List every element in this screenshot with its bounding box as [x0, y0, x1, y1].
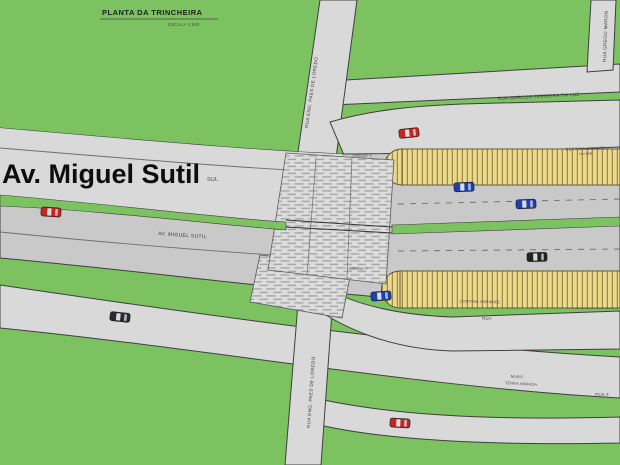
car-icon [110, 311, 131, 322]
annotation-sheet-ref: PLN 4 [595, 392, 609, 397]
car-icon [527, 252, 547, 261]
car-icon [41, 207, 62, 217]
car-icon [390, 418, 410, 428]
avenue-overlay-label: Av. Miguel Sutil [2, 159, 200, 189]
annotation-lower-wall: CORTINA VARIAVEL [459, 299, 501, 305]
annotation-grade-upper: GREIDE 9 [352, 154, 371, 158]
car-icon [371, 291, 392, 301]
annotation-upper-wall-height: H=VAR [579, 152, 593, 156]
annotation-grade-lower: GREIDE 7 [348, 267, 367, 271]
service-road-label: RUA [482, 316, 491, 321]
car-icon [516, 199, 536, 209]
plan-subtitle: ESCALA 1:500 [168, 22, 200, 27]
plan-canvas: PLANTA DA TRINCHEIRA ESCALA 1:500 Av. Mi… [0, 0, 620, 465]
avenue-overlay-suffix: SUL [207, 177, 218, 183]
plan-title: PLANTA DA TRINCHEIRA [102, 8, 203, 17]
car-icon [399, 127, 420, 138]
annotation-retaining-1: MURO [511, 375, 524, 380]
car-icon [454, 182, 474, 192]
retaining-wall-lower [382, 271, 620, 308]
